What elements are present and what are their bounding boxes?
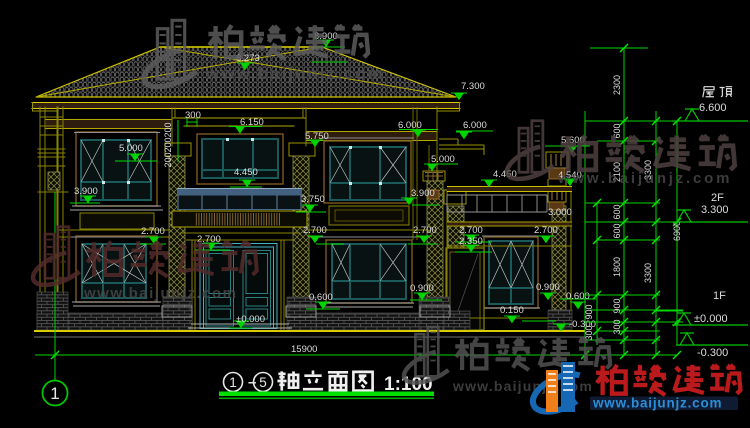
svg-text:600: 600 <box>612 223 622 238</box>
svg-text:5.000: 5.000 <box>119 143 143 154</box>
svg-text:2.700: 2.700 <box>459 225 483 236</box>
svg-text:2300: 2300 <box>612 75 622 95</box>
svg-text:3.750: 3.750 <box>301 194 325 205</box>
svg-text:300: 300 <box>612 319 622 334</box>
svg-text:1: 1 <box>50 384 59 403</box>
svg-text:200: 200 <box>163 137 173 152</box>
svg-text:6.000: 6.000 <box>398 120 422 131</box>
svg-text:7.300: 7.300 <box>461 81 485 92</box>
svg-text:15900: 15900 <box>291 344 317 355</box>
svg-text:4.450: 4.450 <box>234 167 258 178</box>
svg-text:5: 5 <box>259 375 267 390</box>
svg-text:0.900: 0.900 <box>410 283 434 294</box>
svg-text:1800: 1800 <box>612 257 622 277</box>
svg-text:200: 200 <box>163 152 173 167</box>
svg-text:900: 900 <box>584 304 594 319</box>
svg-text:www.baijunjz.com: www.baijunjz.com <box>205 64 385 83</box>
svg-text:5.000: 5.000 <box>431 154 455 165</box>
svg-text:±0.000: ±0.000 <box>694 313 728 325</box>
svg-text:6900: 6900 <box>672 221 682 241</box>
svg-text:300: 300 <box>185 110 201 121</box>
svg-text:200: 200 <box>163 122 173 137</box>
svg-text:900: 900 <box>612 298 622 313</box>
svg-text:6.600: 6.600 <box>699 102 727 114</box>
svg-text:5.750: 5.750 <box>305 131 329 142</box>
svg-text:2.700: 2.700 <box>534 225 558 236</box>
svg-text:1: 1 <box>229 375 237 390</box>
svg-text:2F: 2F <box>711 192 724 204</box>
svg-text:6.150: 6.150 <box>240 117 264 128</box>
svg-text:2.700: 2.700 <box>303 225 327 236</box>
svg-text:6.000: 6.000 <box>463 120 487 131</box>
svg-text:www.baijunjz.com: www.baijunjz.com <box>557 170 732 187</box>
svg-text:1F: 1F <box>713 290 726 302</box>
svg-text:3.300: 3.300 <box>701 204 729 216</box>
svg-text:-0.300: -0.300 <box>697 347 728 359</box>
svg-text:3.000: 3.000 <box>548 207 572 218</box>
svg-text:0.600: 0.600 <box>566 291 590 302</box>
svg-text:2.700: 2.700 <box>141 226 165 237</box>
svg-text:2.700: 2.700 <box>413 225 437 236</box>
svg-text:±0.000: ±0.000 <box>236 314 265 325</box>
svg-text:3.900: 3.900 <box>74 186 98 197</box>
svg-text:0.150: 0.150 <box>500 305 524 316</box>
svg-text:www.baijunjz.com: www.baijunjz.com <box>592 396 722 411</box>
svg-text:www.baijunjz.com: www.baijunjz.com <box>83 285 237 302</box>
svg-text:600: 600 <box>612 204 622 219</box>
svg-text:0.900: 0.900 <box>536 282 560 293</box>
svg-text:3.900: 3.900 <box>411 188 435 199</box>
svg-text:0.600: 0.600 <box>309 292 333 303</box>
svg-text:3300: 3300 <box>643 263 653 283</box>
svg-text:2.350: 2.350 <box>459 236 483 247</box>
